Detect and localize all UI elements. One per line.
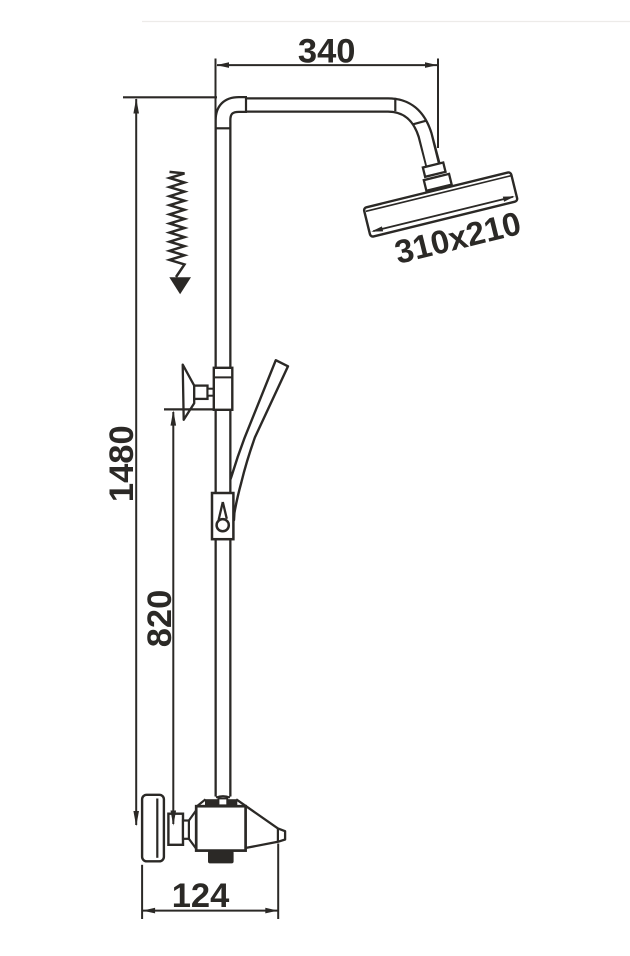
svg-text:820: 820 bbox=[141, 590, 179, 648]
svg-text:124: 124 bbox=[172, 877, 230, 915]
svg-text:340: 340 bbox=[298, 33, 356, 71]
svg-text:1480: 1480 bbox=[103, 425, 141, 502]
